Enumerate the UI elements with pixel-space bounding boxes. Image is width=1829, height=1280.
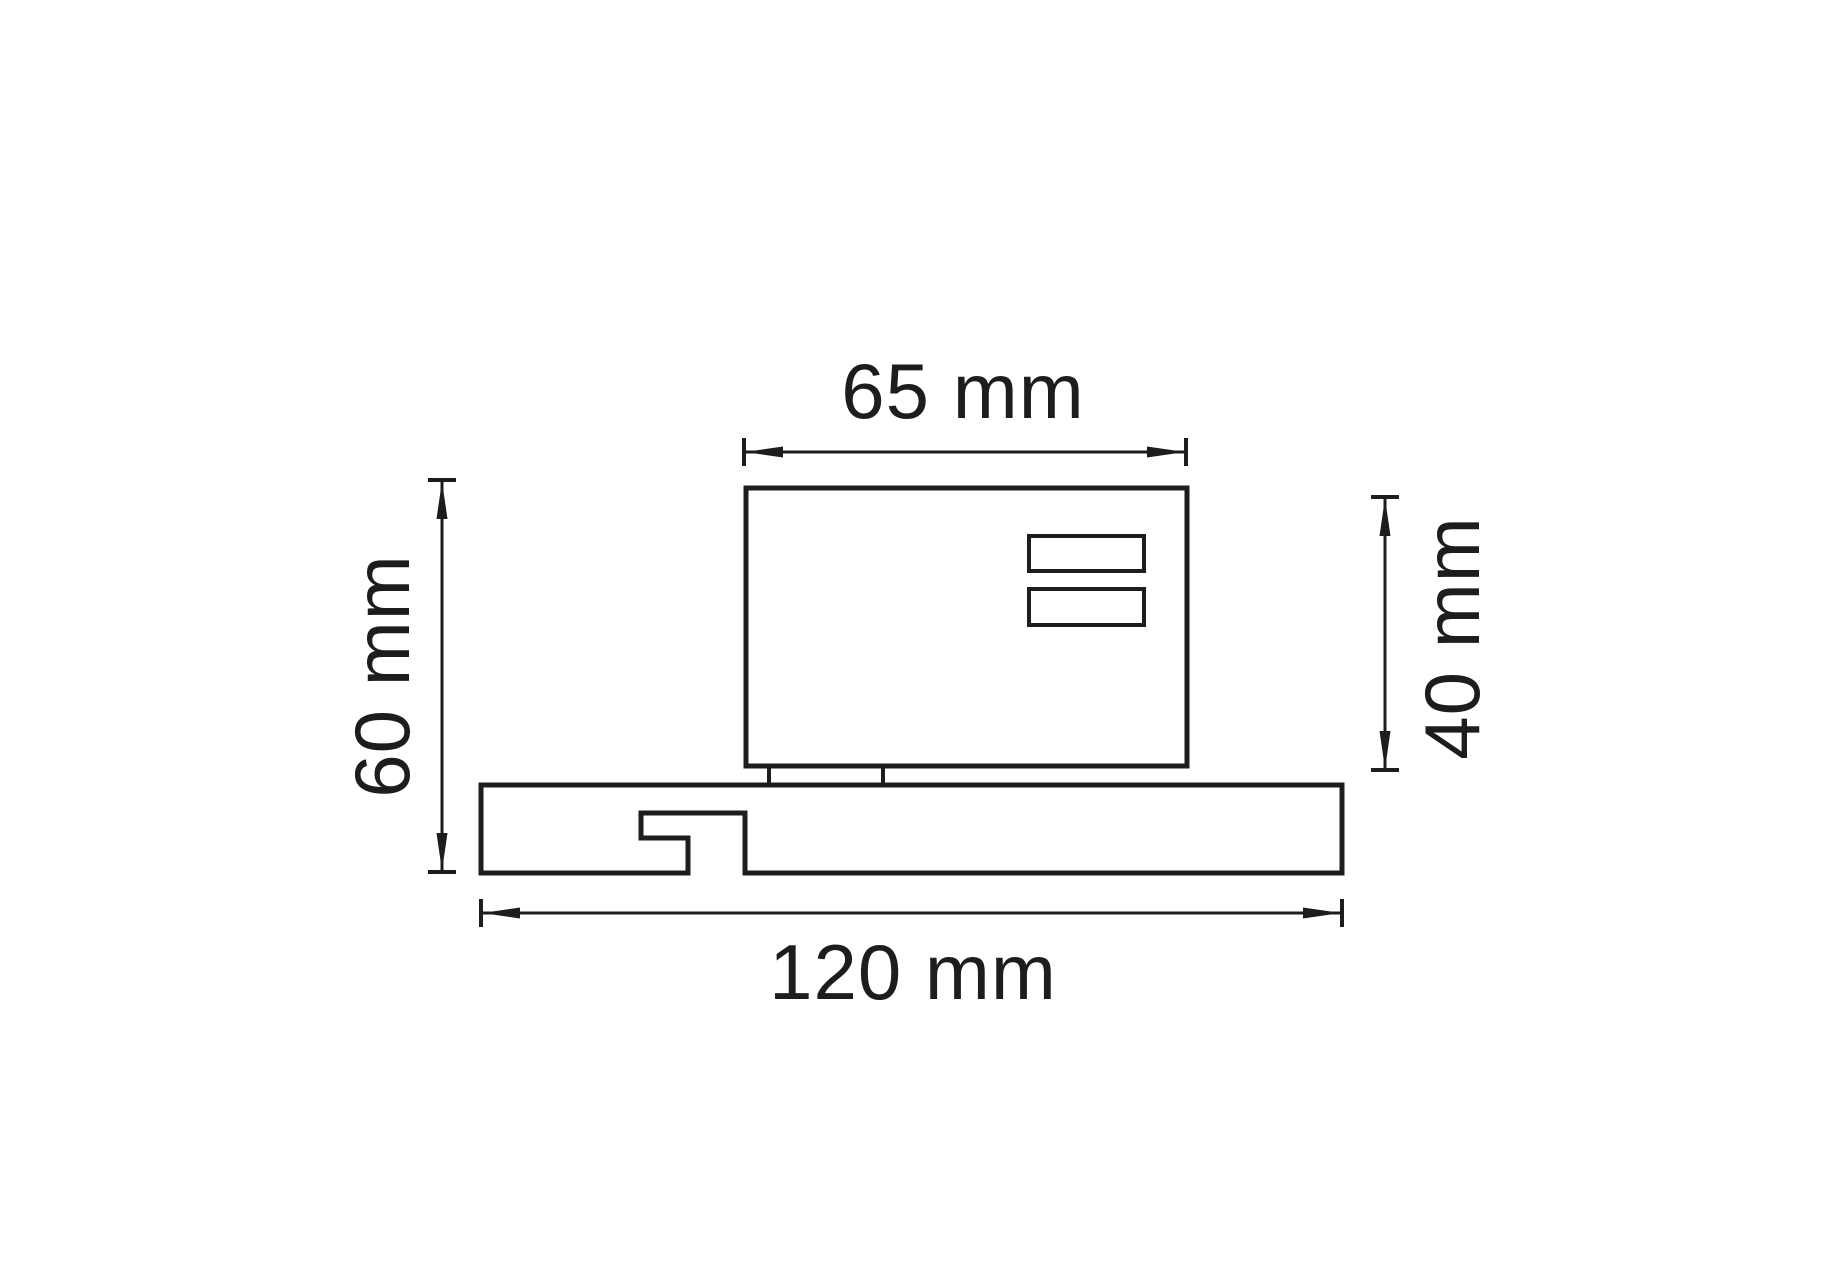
- dimension-label-left: 60 mm: [343, 554, 421, 797]
- dimension-label-bottom: 120 mm: [769, 933, 1057, 1011]
- dimension-label-right: 40 mm: [1413, 516, 1491, 759]
- dimension-120mm: [481, 899, 1342, 927]
- dimension-65mm: [744, 438, 1186, 466]
- dimension-40mm: [1371, 497, 1399, 770]
- terminal-slot-bottom: [1029, 589, 1144, 625]
- arrow-up-icon: [437, 481, 448, 519]
- arrow-left-icon: [745, 447, 783, 458]
- arrow-right-icon: [1147, 447, 1185, 458]
- dimension-label-top: 65 mm: [841, 352, 1084, 430]
- arrow-up-icon: [1380, 498, 1391, 536]
- diagram-canvas: 65 mm 60 mm 40 mm 120 mm: [0, 0, 1829, 1280]
- arrow-right-icon: [1303, 908, 1341, 919]
- track-base-profile: [481, 785, 1342, 873]
- arrow-down-icon: [437, 833, 448, 871]
- arrow-left-icon: [482, 908, 520, 919]
- arrow-down-icon: [1380, 731, 1391, 769]
- dimension-drawing: [0, 0, 1829, 1280]
- terminal-slot-top: [1029, 536, 1144, 571]
- dimension-60mm: [428, 480, 456, 872]
